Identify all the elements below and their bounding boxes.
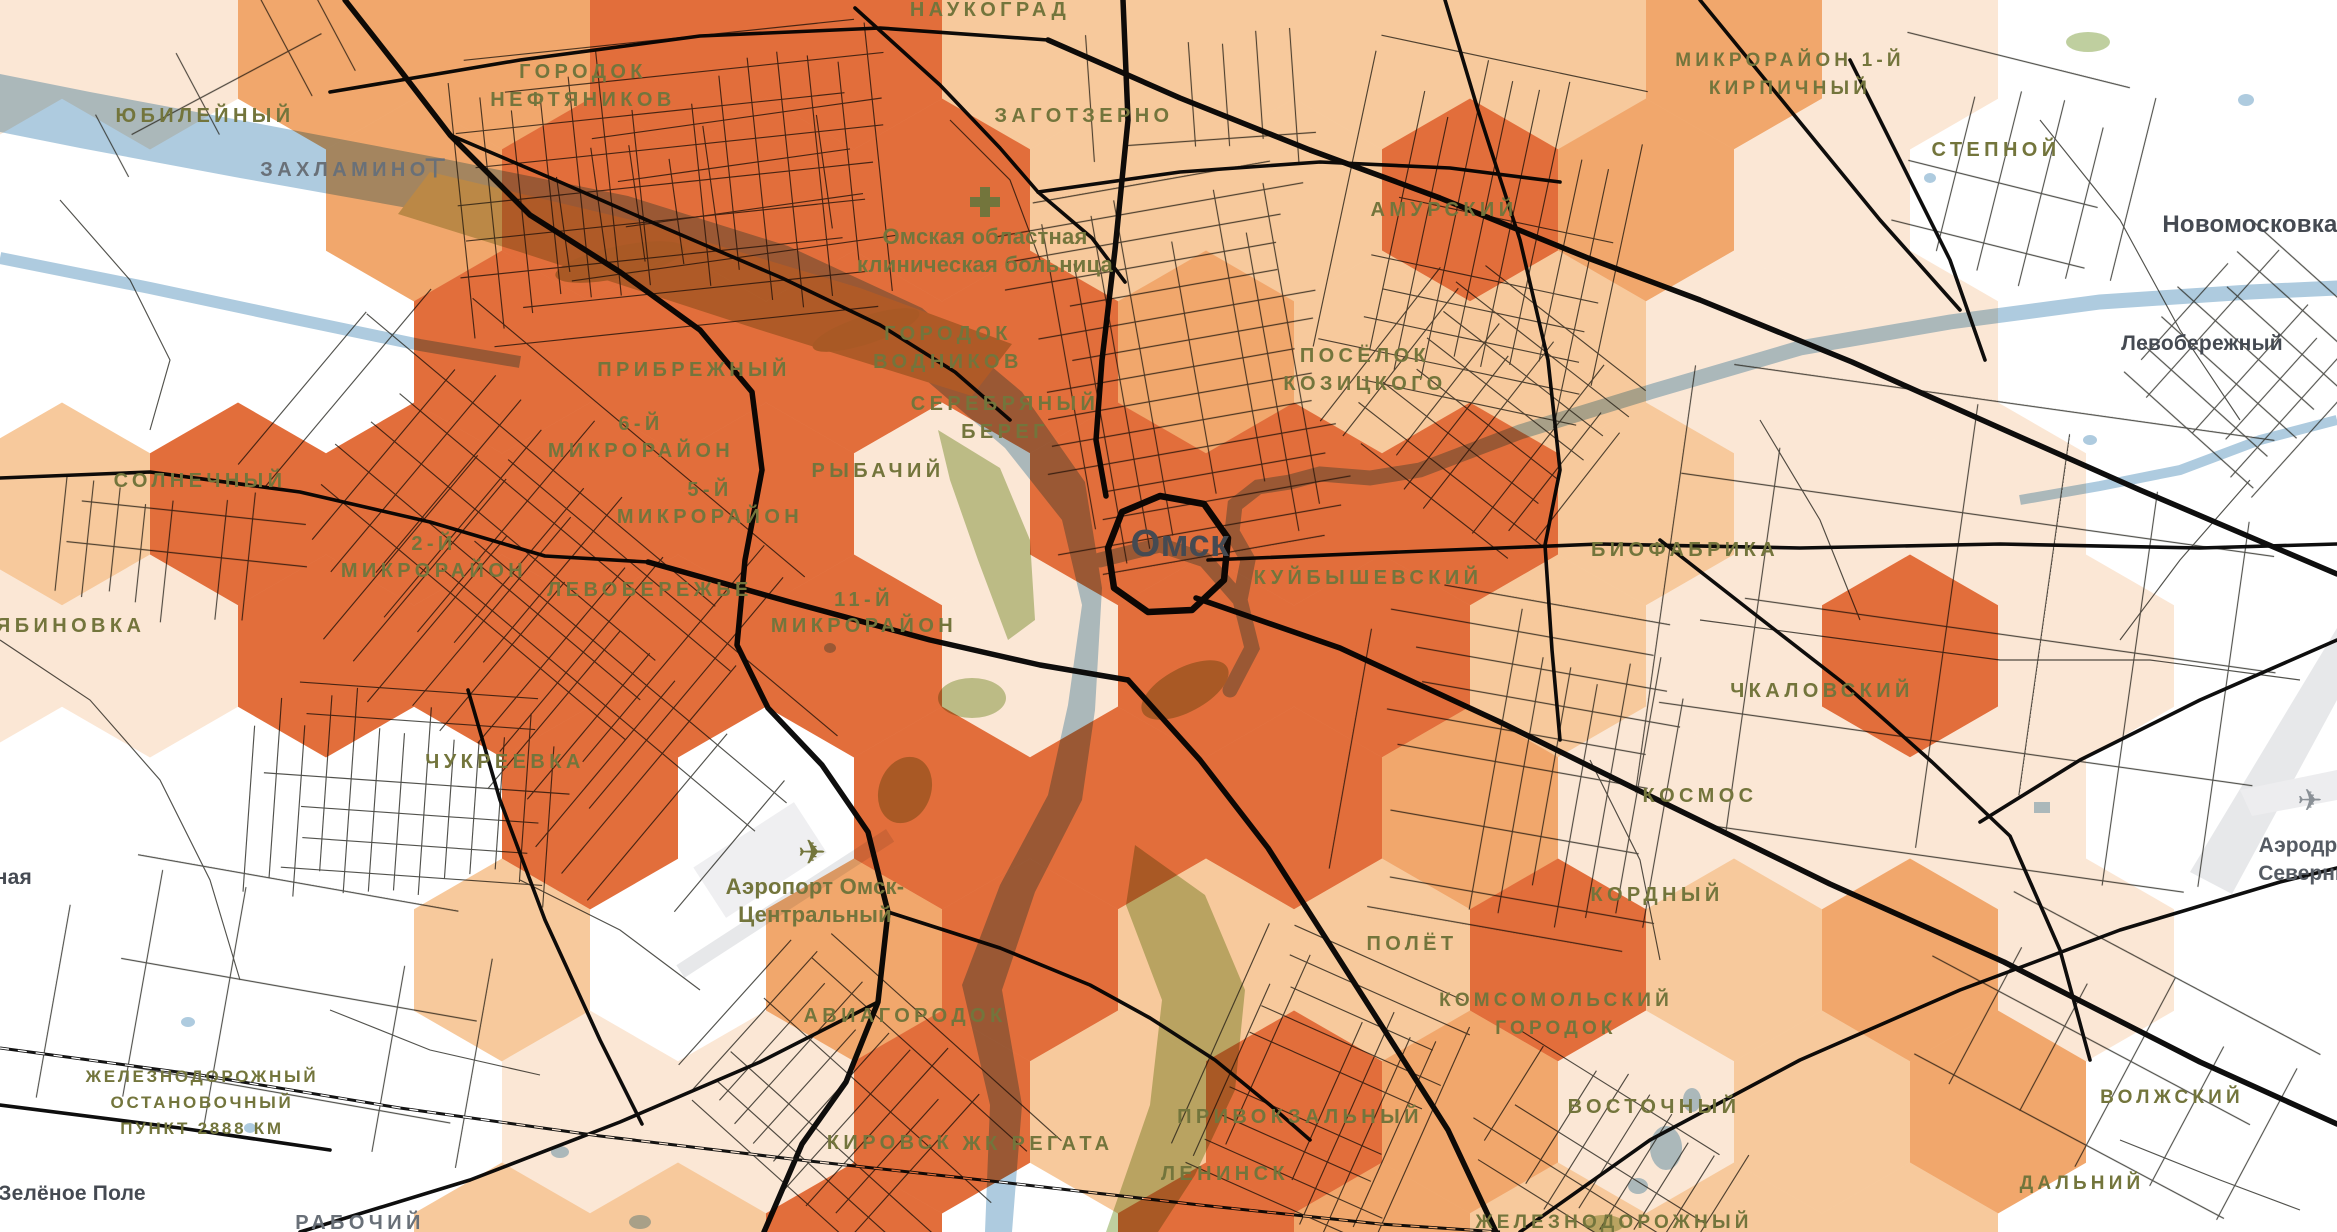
district-label: МИКРОРАЙОН [771,613,957,637]
district-label: ЗАХЛАМИНО [260,159,429,181]
district-label: СЕРЕБРЯНЫЙ [911,391,1099,415]
district-label: МИКРОРАЙОН [548,438,734,462]
district-label: ЛЕНИНСК [1161,1163,1289,1185]
district-label: 5-Й [687,477,732,501]
district-label: РЫБАЧИЙ [811,458,944,482]
town-label: Омск [1131,523,1230,565]
district-label: ГОРОДОК [519,61,647,83]
town-label: Ракетная [0,866,32,889]
district-label: 2-Й [411,531,456,555]
district-label: ЮБИЛЕЙНЫЙ [115,103,294,127]
airport-plane-icon: ✈ [798,834,827,872]
district-label: КОЗИЦКОГО [1283,373,1446,395]
town-label: Новомосковка [2162,211,2337,238]
district-label: АМУРСКИЙ [1371,197,1518,221]
district-label: КОРДНЫЙ [1590,882,1723,906]
district-label: ЗАГОТЗЕРНО [994,105,1173,127]
district-label: ВОЛЖСКИЙ [2100,1086,2244,1108]
district-label: ПРИБРЕЖНЫЙ [597,357,791,381]
district-label: ЖЕЛЕЗНОДОРОЖНЫЙ [1474,1211,1752,1232]
district-label: ВОСТОЧНЫЙ [1568,1094,1741,1118]
district-label: РЯБИНОВКА [0,615,145,637]
district-label: СТЕПНОЙ [1931,137,2060,161]
omsk-map-canvas[interactable]: ЮБИЛЕЙНЫЙГОРОДОКНЕФТЯНИКОВНАУКОГРАДЗАГОТ… [0,0,2337,1232]
district-label: БЕРЕГ [961,421,1049,443]
district-label: ЖЕЛЕЗНОДОРОЖНЫЙ [85,1067,319,1086]
town-label: Зелёное Поле [0,1182,146,1205]
map-viewport[interactable]: ЮБИЛЕЙНЫЙГОРОДОКНЕФТЯНИКОВНАУКОГРАДЗАГОТ… [0,0,2337,1232]
district-label: КОСМОС [1642,785,1757,807]
district-label: КИРПИЧНЫЙ [1709,77,1871,99]
district-label: СОЛНЕЧНЫЙ [114,468,287,492]
district-label: ДАЛЬНИЙ [2020,1172,2145,1194]
district-label: БИОФАБРИКА [1591,539,1779,561]
district-label: ГОРОДОК [884,323,1012,345]
district-label: МИКРОРАЙОН [341,558,527,582]
poi-label: Омская областная [882,224,1087,249]
district-label: АВИАГОРОДОК [803,1005,1006,1027]
town-label: Левобережный [2121,332,2283,355]
district-label: НАУКОГРАД [910,0,1070,21]
district-label: ПОЛЁТ [1366,932,1457,955]
district-label: КУЙБЫШЕВСКИЙ [1254,565,1483,589]
poi-label: клиническая больница [857,252,1114,277]
district-label: 11-Й [834,587,894,611]
district-label: ЖК РЕГАТА [961,1133,1113,1155]
district-label: РАБОЧИЙ [295,1210,425,1232]
poi-label: Аэродром [2259,834,2337,857]
district-label: КОМСОМОЛЬСКИЙ [1439,989,1673,1011]
aerodrome-plane-icon: ✈ [2297,785,2322,818]
district-label: ГОРОДОК [1495,1018,1616,1039]
poi-label: Центральный [738,902,892,927]
district-label: ПОСЁЛОК [1300,344,1430,367]
district-label: МИКРОРАЙОН [617,504,803,528]
district-label: ПУНКТ 2888 КМ [120,1119,283,1138]
poi-label: Северный [2258,862,2337,885]
mast-icon: ⊤ [424,153,452,183]
district-label: ПРИВОКЗАЛЬНЫЙ [1177,1104,1423,1128]
district-label: 6-Й [618,411,663,435]
district-label: ОСТАНОВОЧНЫЙ [111,1093,294,1112]
district-label: МИКРОРАЙОН 1-Й [1675,49,1905,71]
district-label: ЧКАЛОВСКИЙ [1730,678,1914,702]
district-label: ВОДНИКОВ [873,351,1023,373]
district-label: НЕФТЯНИКОВ [490,89,675,111]
district-label: КИРОВСК [827,1132,953,1154]
poi-label: Аэропорт Омск- [726,874,905,899]
district-label: ЛЕВОБЕРЕЖЬЕ [547,579,752,601]
district-label: ЧУКРЕЕВКА [425,751,584,773]
